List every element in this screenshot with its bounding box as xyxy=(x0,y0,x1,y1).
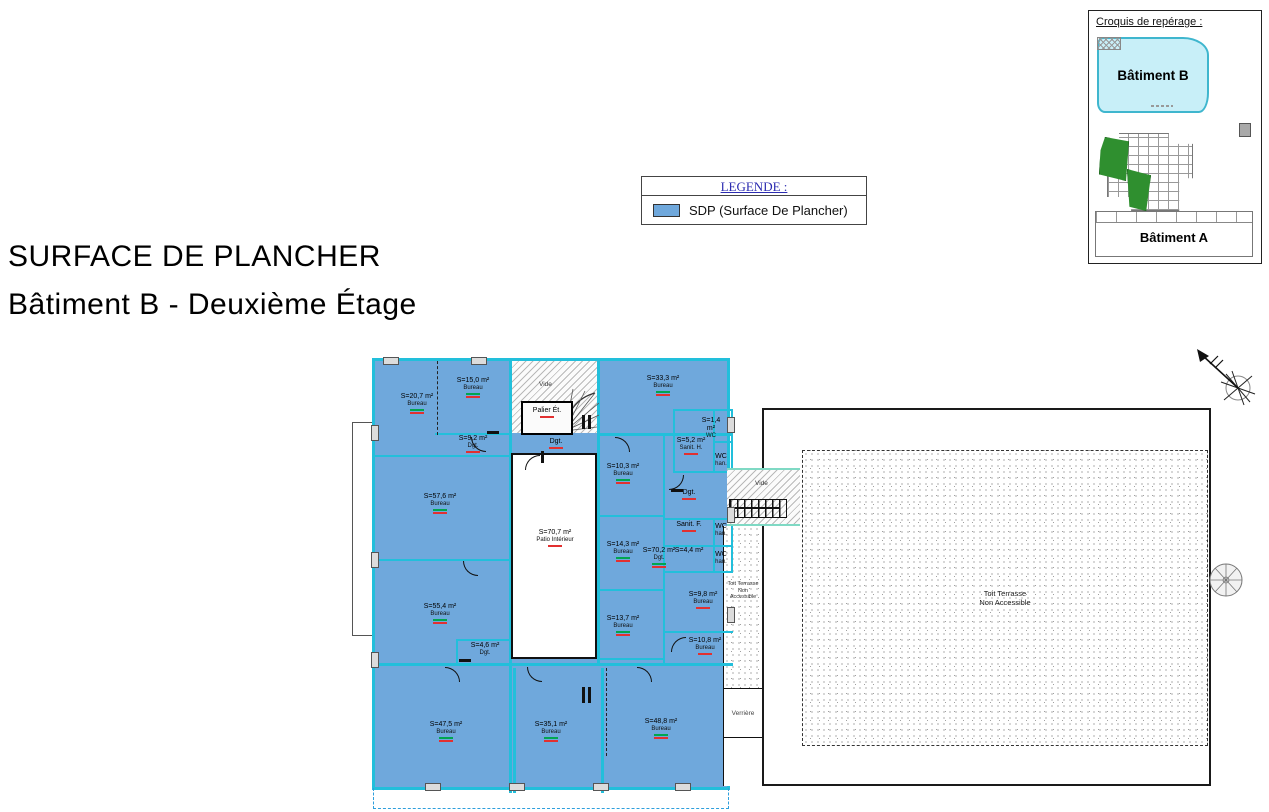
hatch-patch xyxy=(1097,37,1121,50)
red-annotation xyxy=(652,566,666,568)
room-label: S=13,7 m²Bureau xyxy=(591,615,655,636)
room-label: WChan. xyxy=(707,453,735,468)
red-annotation xyxy=(656,394,670,396)
verriere-label: Verrière xyxy=(732,710,755,717)
door-leaf xyxy=(541,451,544,463)
west-ledge xyxy=(352,422,373,636)
sdp-annotation xyxy=(433,619,447,621)
wall-segment xyxy=(599,515,663,517)
room-label: S=4,4 m² xyxy=(669,547,709,555)
column xyxy=(383,357,399,365)
roof-terrace-label: Toit Terrasse Non Accessible xyxy=(979,589,1030,608)
roof-terrace: Toit Terrasse Non Accessible xyxy=(762,408,1211,786)
red-annotation xyxy=(540,416,554,418)
double-door-leaf xyxy=(588,415,591,429)
wall-segment xyxy=(375,663,733,666)
red-annotation xyxy=(698,653,712,655)
column xyxy=(509,783,525,791)
sdp-annotation xyxy=(410,409,424,411)
red-annotation xyxy=(433,622,447,624)
wall-segment xyxy=(513,668,516,793)
red-annotation xyxy=(682,530,696,532)
column xyxy=(593,783,609,791)
drawing-page: SURFACE DE PLANCHER Bâtiment B - Deuxièm… xyxy=(0,0,1269,812)
sdp-annotation xyxy=(433,509,447,511)
room-label: Dgt. xyxy=(542,438,570,449)
column xyxy=(371,425,379,441)
red-annotation xyxy=(549,447,563,449)
void-top-label: Vide xyxy=(539,381,552,388)
red-annotation xyxy=(684,453,698,455)
stair-flight xyxy=(729,499,787,518)
building-a-plan: Bâtiment A xyxy=(1093,129,1257,261)
column xyxy=(371,652,379,668)
column xyxy=(471,357,487,365)
terrace-strip-label: Toit Terrasse Non Accessible xyxy=(725,581,761,601)
room-label: S=5,2 m²Sanit. H. xyxy=(671,437,711,455)
sdp-annotation xyxy=(656,391,670,393)
room-label: WChan. xyxy=(707,523,735,538)
room-label: Palier Ét. xyxy=(527,407,567,418)
room-label: S=48,8 m²Bureau xyxy=(629,718,693,739)
sdp-annotation xyxy=(466,393,480,395)
red-annotation xyxy=(616,560,630,562)
sdp-color-swatch xyxy=(653,204,680,217)
location-sketch-title: Croquis de repérage : xyxy=(1096,16,1202,28)
door-arc xyxy=(637,667,652,682)
door-arc xyxy=(527,667,542,682)
sdp-annotation xyxy=(652,563,666,565)
red-annotation xyxy=(433,512,447,514)
room-label: S=35,1 m²Bureau xyxy=(519,721,583,742)
legend-item: SDP (Surface De Plancher) xyxy=(642,196,866,224)
door-arc xyxy=(671,637,686,652)
red-annotation xyxy=(616,482,630,484)
sdp-annotation xyxy=(654,734,668,736)
door-arc xyxy=(463,561,478,576)
void-connector: Vide xyxy=(727,468,800,526)
room-label: S=20,7 m²Bureau xyxy=(385,393,449,414)
column xyxy=(727,607,735,623)
room-label: S=15,0 m²Bureau xyxy=(441,377,505,398)
double-door-leaf xyxy=(582,687,585,703)
small-note-mark xyxy=(1151,105,1173,107)
sdp-annotation xyxy=(439,737,453,739)
patio-room xyxy=(511,453,597,659)
door-leaf xyxy=(459,659,471,662)
red-annotation xyxy=(654,737,668,739)
wall-segment xyxy=(599,658,663,660)
void-connector-label: Vide xyxy=(755,480,768,487)
room-label: S=14,3 m²Bureau xyxy=(591,541,655,562)
room-label: S=55,4 m²Bureau xyxy=(408,603,472,624)
red-annotation xyxy=(548,545,562,547)
room-label: S=10,8 m²Bureau xyxy=(685,637,725,655)
room-label: S=33,3 m²Bureau xyxy=(631,375,695,396)
sdp-annotation xyxy=(616,557,630,559)
page-subtitle: Bâtiment B - Deuxième Étage xyxy=(8,288,417,322)
red-annotation xyxy=(544,740,558,742)
red-annotation xyxy=(466,396,480,398)
red-annotation xyxy=(616,634,630,636)
column xyxy=(727,417,735,433)
patio-label: S=70,7 m²Patio Intérieur xyxy=(523,529,587,547)
room-label: S=9,8 m²Bureau xyxy=(683,591,723,609)
building-b-label: Bâtiment B xyxy=(1117,68,1188,83)
building-b-shape: Bâtiment B xyxy=(1097,37,1209,113)
partition-dashed xyxy=(606,668,607,756)
location-sketch-box: Croquis de repérage : Bâtiment B Bâtimen… xyxy=(1088,10,1262,264)
sdp-annotation xyxy=(616,479,630,481)
column xyxy=(425,783,441,791)
door-arc xyxy=(445,667,460,682)
sdp-annotation xyxy=(544,737,558,739)
room-label: S=10,3 m²Bureau xyxy=(591,463,655,484)
column xyxy=(371,552,379,568)
legend-header: LEGENDE : xyxy=(642,177,866,196)
double-door-leaf xyxy=(582,415,585,429)
room-label: S=4,6 m²Dgt. xyxy=(465,642,505,657)
red-annotation xyxy=(682,498,696,500)
red-annotation xyxy=(466,451,480,453)
wall-segment xyxy=(375,559,511,561)
page-title: SURFACE DE PLANCHER xyxy=(8,240,381,274)
double-door-leaf xyxy=(588,687,591,703)
building-a-label: Bâtiment A xyxy=(1096,230,1252,245)
red-annotation xyxy=(439,740,453,742)
door-arc xyxy=(615,437,630,452)
room-label: S=47,5 m²Bureau xyxy=(414,721,478,742)
sdp-annotation xyxy=(616,631,630,633)
legend-item-label: SDP (Surface De Plancher) xyxy=(689,203,848,218)
room-label: S=9,2 m²Dgt. xyxy=(441,435,505,453)
room-label: WChan. xyxy=(707,551,735,566)
building-a-room-strip xyxy=(1096,212,1252,223)
room-label: Sanit. F. xyxy=(669,521,709,532)
door-leaf xyxy=(487,431,499,434)
building-b-floorplan: Vide xyxy=(372,358,730,790)
gray-annex-block xyxy=(1239,123,1251,137)
wall-segment xyxy=(601,668,604,793)
column xyxy=(727,507,735,523)
north-arrow-icon xyxy=(1190,346,1266,410)
wall-segment xyxy=(713,441,733,443)
column xyxy=(675,783,691,791)
building-a-lower-block: Bâtiment A xyxy=(1095,211,1253,257)
door-arc xyxy=(669,475,684,490)
exterior-spiral-stair-icon xyxy=(1206,552,1250,608)
verriere-box: Verrière xyxy=(724,688,762,738)
wall-segment xyxy=(663,631,733,633)
dashed-boundary xyxy=(373,788,729,809)
red-annotation xyxy=(696,607,710,609)
wall-segment xyxy=(375,455,511,457)
green-area-1 xyxy=(1099,137,1129,181)
red-annotation xyxy=(410,412,424,414)
room-label: S=57,6 m²Bureau xyxy=(408,493,472,514)
roof-terrace-inner: Toit Terrasse Non Accessible xyxy=(802,450,1208,746)
stair-direction-line xyxy=(733,507,779,509)
room-label: Dgt. xyxy=(675,489,703,500)
wall-segment xyxy=(599,589,663,591)
legend-box: LEGENDE : SDP (Surface De Plancher) xyxy=(641,176,867,225)
